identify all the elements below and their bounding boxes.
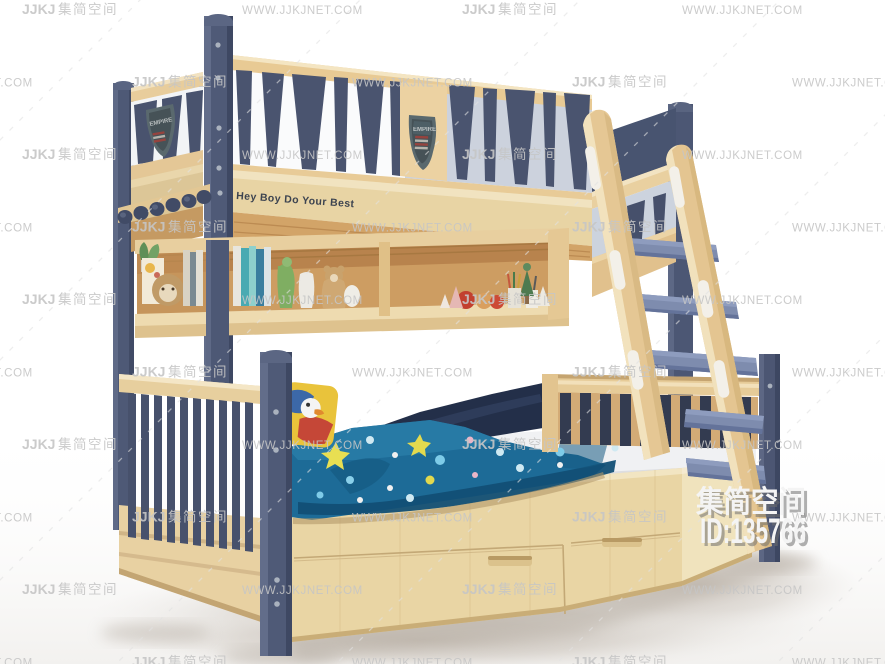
- svg-text:JJKJ: JJKJ: [132, 74, 165, 90]
- svg-text:WWW.JJKJNET.COM: WWW.JJKJNET.COM: [0, 223, 33, 235]
- svg-text:WWW.JJKJNET.COM: WWW.JJKJNET.COM: [352, 658, 473, 664]
- svg-text:集简空间: 集简空间: [168, 74, 228, 90]
- svg-text:EMPIRE: EMPIRE: [413, 127, 436, 133]
- svg-text:WWW.JJKJNET.COM: WWW.JJKJNET.COM: [242, 150, 363, 162]
- svg-text:JJKJ: JJKJ: [572, 509, 605, 525]
- svg-text:JJKJ: JJKJ: [132, 654, 165, 664]
- svg-text:WWW.JJKJNET.COM: WWW.JJKJNET.COM: [352, 78, 473, 90]
- svg-text:集简空间: 集简空间: [168, 364, 228, 380]
- svg-text:JJKJ: JJKJ: [462, 146, 495, 162]
- svg-text:集简空间: 集简空间: [168, 654, 228, 664]
- svg-text:集简空间: 集简空间: [168, 219, 228, 235]
- svg-text:JJKJ: JJKJ: [462, 1, 495, 17]
- svg-text:JJKJ: JJKJ: [572, 74, 605, 90]
- svg-text:集简空间: 集简空间: [58, 1, 118, 17]
- svg-text:JJKJ: JJKJ: [22, 291, 55, 307]
- svg-text:WWW.JJKJNET.COM: WWW.JJKJNET.COM: [792, 78, 885, 90]
- svg-text:JJKJ: JJKJ: [572, 364, 605, 380]
- svg-text:JJKJ: JJKJ: [22, 146, 55, 162]
- svg-text:JJKJ: JJKJ: [132, 509, 165, 525]
- svg-text:WWW.JJKJNET.COM: WWW.JJKJNET.COM: [682, 440, 803, 452]
- svg-text:JJKJ: JJKJ: [462, 436, 495, 452]
- svg-text:集简空间: 集简空间: [498, 436, 558, 452]
- svg-text:集简空间: 集简空间: [608, 509, 668, 525]
- svg-text:WWW.JJKJNET.COM: WWW.JJKJNET.COM: [792, 658, 885, 664]
- svg-text:JJKJ: JJKJ: [22, 436, 55, 452]
- svg-text:集简空间: 集简空间: [498, 291, 558, 307]
- svg-text:集简空间: 集简空间: [168, 509, 228, 525]
- svg-text:WWW.JJKJNET.COM: WWW.JJKJNET.COM: [0, 78, 33, 90]
- svg-text:集简空间: 集简空间: [498, 581, 558, 597]
- svg-text:WWW.JJKJNET.COM: WWW.JJKJNET.COM: [682, 150, 803, 162]
- svg-text:JJKJ: JJKJ: [462, 581, 495, 597]
- svg-text:WWW.JJKJNET.COM: WWW.JJKJNET.COM: [682, 5, 803, 17]
- svg-text:WWW.JJKJNET.COM: WWW.JJKJNET.COM: [0, 368, 33, 380]
- svg-text:WWW.JJKJNET.COM: WWW.JJKJNET.COM: [352, 513, 473, 525]
- svg-text:ID:135766: ID:135766: [700, 512, 806, 551]
- svg-text:集简空间: 集简空间: [58, 146, 118, 162]
- svg-text:WWW.JJKJNET.COM: WWW.JJKJNET.COM: [792, 368, 885, 380]
- svg-text:集简空间: 集简空间: [58, 436, 118, 452]
- svg-text:JJKJ: JJKJ: [132, 219, 165, 235]
- svg-text:集简空间: 集简空间: [498, 1, 558, 17]
- svg-text:集简空间: 集简空间: [608, 654, 668, 664]
- svg-text:WWW.JJKJNET.COM: WWW.JJKJNET.COM: [0, 513, 33, 525]
- svg-text:WWW.JJKJNET.COM: WWW.JJKJNET.COM: [352, 223, 473, 235]
- svg-text:集简空间: 集简空间: [608, 74, 668, 90]
- svg-text:WWW.JJKJNET.COM: WWW.JJKJNET.COM: [242, 585, 363, 597]
- svg-text:WWW.JJKJNET.COM: WWW.JJKJNET.COM: [242, 440, 363, 452]
- svg-text:WWW.JJKJNET.COM: WWW.JJKJNET.COM: [352, 368, 473, 380]
- svg-text:WWW.JJKJNET.COM: WWW.JJKJNET.COM: [242, 295, 363, 307]
- svg-text:WWW.JJKJNET.COM: WWW.JJKJNET.COM: [682, 585, 803, 597]
- svg-text:JJKJ: JJKJ: [462, 291, 495, 307]
- svg-text:JJKJ: JJKJ: [22, 1, 55, 17]
- svg-text:WWW.JJKJNET.COM: WWW.JJKJNET.COM: [792, 223, 885, 235]
- svg-text:集简空间: 集简空间: [58, 291, 118, 307]
- svg-text:JJKJ: JJKJ: [22, 581, 55, 597]
- svg-text:集简空间: 集简空间: [608, 219, 668, 235]
- svg-text:WWW.JJKJNET.COM: WWW.JJKJNET.COM: [0, 658, 33, 664]
- svg-text:集简空间: 集简空间: [58, 581, 118, 597]
- svg-text:集简空间: 集简空间: [498, 146, 558, 162]
- svg-text:JJKJ: JJKJ: [572, 654, 605, 664]
- svg-text:JJKJ: JJKJ: [572, 219, 605, 235]
- svg-text:JJKJ: JJKJ: [132, 364, 165, 380]
- svg-text:集简空间: 集简空间: [608, 364, 668, 380]
- svg-text:WWW.JJKJNET.COM: WWW.JJKJNET.COM: [682, 295, 803, 307]
- svg-text:WWW.JJKJNET.COM: WWW.JJKJNET.COM: [242, 5, 363, 17]
